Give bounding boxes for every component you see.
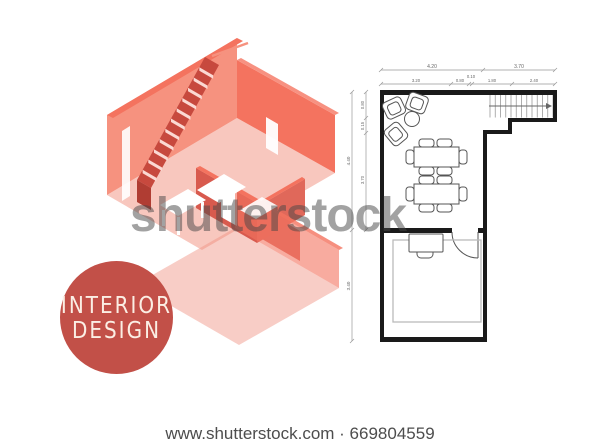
plan-walls	[380, 90, 557, 342]
dining-set-1	[406, 139, 467, 175]
dining-chair	[419, 167, 434, 175]
dining-chair	[419, 204, 434, 212]
shutterstock-watermark: shutterstock	[130, 188, 406, 243]
dim-label: 2.40	[530, 78, 539, 83]
dining-chair	[437, 204, 452, 212]
dining-chair	[406, 187, 414, 201]
door-swing	[452, 232, 478, 258]
dim-label: 0.15	[360, 121, 365, 130]
stock-image-preview: 4.20 3.70 3.20 0.80 0.10 1.80 2.40 4.40 …	[0, 0, 600, 447]
badge-line2: DESIGN	[72, 316, 161, 345]
interior-design-badge: INTERIOR DESIGN	[60, 261, 173, 374]
dining-chair	[419, 139, 434, 147]
dining-table	[414, 184, 459, 204]
lounge-armchair	[383, 121, 410, 148]
coffee-table	[405, 112, 420, 127]
dining-table	[414, 147, 459, 167]
desk-with-chair	[409, 234, 443, 258]
image-caption: www.shutterstock.com · 669804559	[0, 424, 600, 444]
dining-chair	[437, 139, 452, 147]
dining-chair	[406, 150, 414, 164]
dim-label: 4.20	[427, 64, 437, 70]
dining-chair	[459, 150, 467, 164]
badge-line1: INTERIOR	[61, 291, 172, 320]
dining-chair	[419, 176, 434, 184]
dim-label: 0.80	[360, 100, 365, 109]
dining-chair	[437, 167, 452, 175]
dim-label: 3.40	[346, 281, 351, 290]
desk	[409, 234, 443, 252]
dim-label: 0.80	[456, 78, 465, 83]
dim-label: 3.20	[412, 78, 421, 83]
lounge-armchair	[381, 96, 407, 121]
dim-label: 1.80	[488, 78, 497, 83]
dim-label: 3.70	[360, 175, 365, 184]
dim-label: 3.70	[514, 64, 524, 70]
dimension-row-1	[379, 68, 557, 72]
dining-set-2	[406, 176, 467, 212]
dim-label: 0.10	[467, 74, 476, 79]
dining-chair	[459, 187, 467, 201]
dining-chair	[437, 176, 452, 184]
dim-label: 4.40	[346, 156, 351, 165]
